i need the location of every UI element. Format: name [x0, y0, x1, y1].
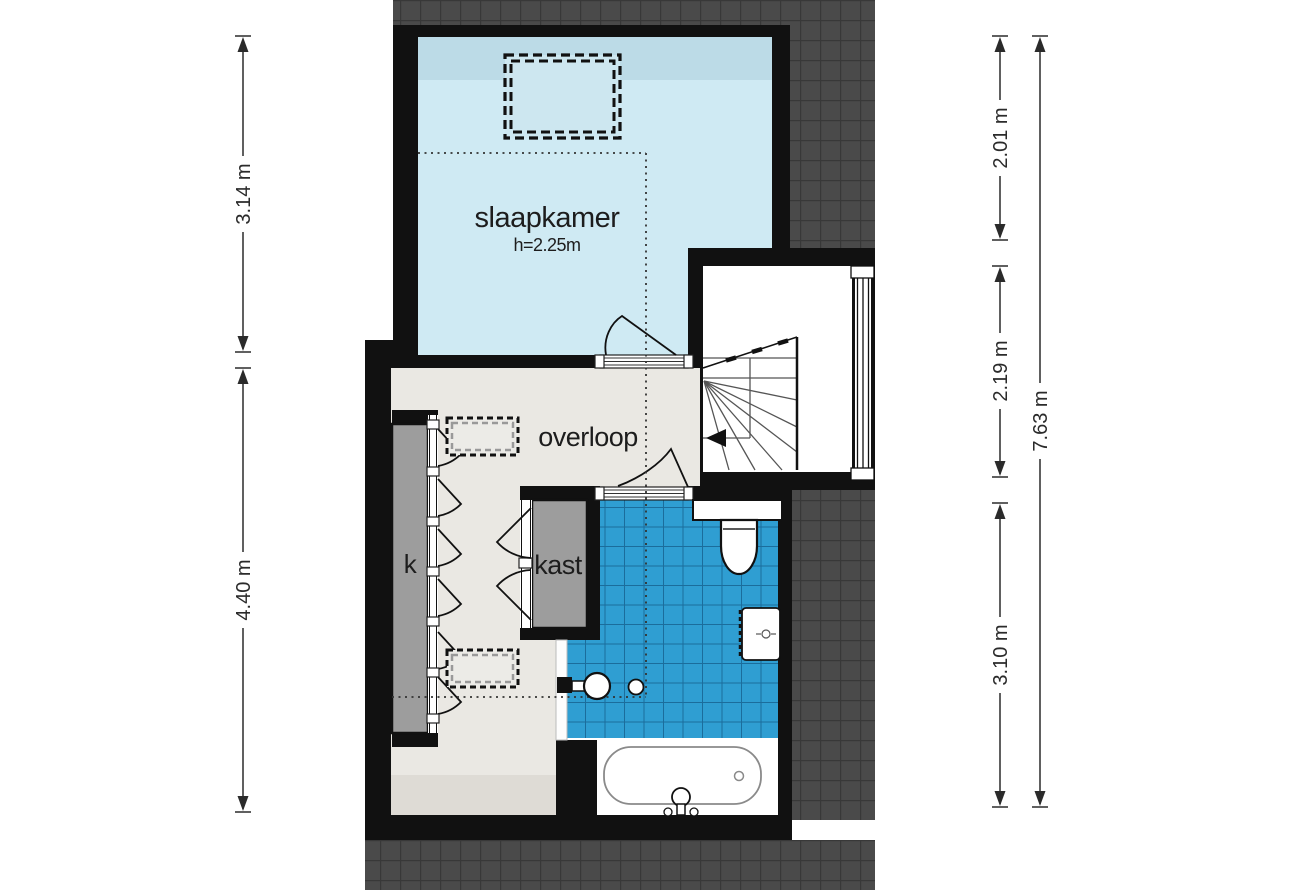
dimension-left-1: 3.14 m — [233, 36, 255, 352]
radiator — [740, 608, 780, 660]
svg-text:2.01 m: 2.01 m — [990, 107, 1012, 168]
dimension-right-1: 2.01 m — [990, 36, 1012, 240]
svg-text:3.10 m: 3.10 m — [990, 624, 1012, 685]
roof-window-outline-overloop-2 — [447, 650, 518, 687]
dimension-left-2: 4.40 m — [233, 368, 255, 812]
label-slaapkamer-height: h=2.25m — [513, 235, 580, 255]
floorplan-page: slaapkamer h=2.25m overloop k kast 3.14 … — [0, 0, 1300, 890]
dimension-right-3: 3.10 m — [990, 503, 1012, 807]
roof-window-outline-slaapkamer — [505, 55, 620, 138]
svg-text:7.63 m: 7.63 m — [1030, 390, 1052, 451]
label-overloop: overloop — [538, 422, 638, 452]
label-closet-k: k — [404, 549, 418, 579]
svg-text:2.19 m: 2.19 m — [990, 340, 1012, 401]
label-kast: kast — [534, 550, 583, 580]
dimension-right-2: 2.19 m — [990, 266, 1012, 477]
dimension-right-total: 7.63 m — [1030, 36, 1052, 807]
svg-text:4.40 m: 4.40 m — [233, 559, 255, 620]
svg-text:3.14 m: 3.14 m — [233, 163, 255, 224]
roof-window-outline-overloop-1 — [447, 418, 518, 455]
floorplan-svg: slaapkamer h=2.25m overloop k kast 3.14 … — [0, 0, 1300, 890]
label-slaapkamer: slaapkamer — [475, 202, 621, 234]
